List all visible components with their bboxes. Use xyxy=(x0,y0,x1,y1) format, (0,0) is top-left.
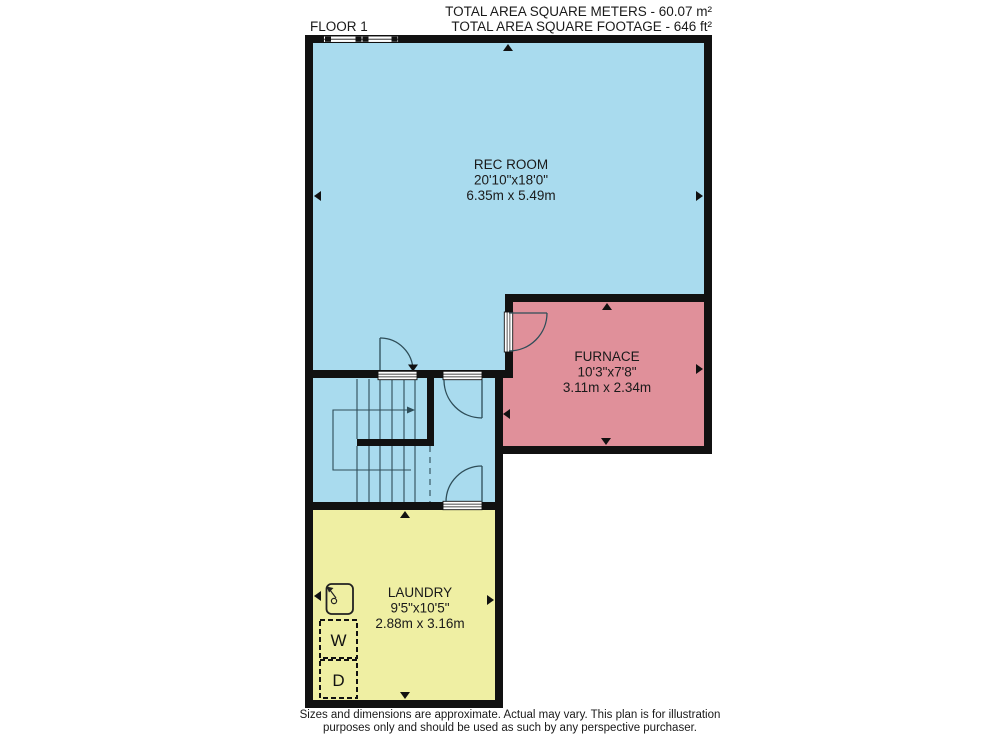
furnace-dims-metric: 3.11m x 2.34m xyxy=(563,380,651,395)
laundry-name: LAUNDRY xyxy=(388,585,452,600)
wall-stair-divider xyxy=(357,439,434,446)
floor-plan-drawing: W D REC ROOM 20'10"x18'0" 6.35m x 5.49m … xyxy=(0,0,1000,737)
opening-recroom-left xyxy=(378,371,417,379)
wall-furnace-top xyxy=(505,294,712,302)
opening-recroom-right xyxy=(443,371,482,379)
laundry-dims-imperial: 9'5"x10'5" xyxy=(390,601,449,616)
rec-room-dims-metric: 6.35m x 5.49m xyxy=(466,188,555,203)
furnace-name: FURNACE xyxy=(574,349,639,364)
disclaimer: Sizes and dimensions are approximate. Ac… xyxy=(10,709,1000,735)
window-symbol xyxy=(324,36,399,42)
wall-right xyxy=(704,35,712,454)
disclaimer-line2: purposes only and should be used as such… xyxy=(10,722,1000,735)
furnace-dims-imperial: 10'3"x7'8" xyxy=(577,365,636,380)
disclaimer-line1: Sizes and dimensions are approximate. Ac… xyxy=(10,709,1000,722)
opening-furnace xyxy=(504,312,512,352)
dryer-label: D xyxy=(332,671,344,690)
rec-room-name: REC ROOM xyxy=(474,157,548,172)
opening-laundry xyxy=(443,501,482,509)
wall-stair-stub xyxy=(427,378,434,446)
wall-furnace-bottom xyxy=(495,446,712,454)
floor-plan-page: FLOOR 1 TOTAL AREA SQUARE METERS - 60.07… xyxy=(0,0,1000,737)
wall-hall-right xyxy=(495,378,503,708)
washer-label: W xyxy=(330,631,346,650)
laundry-dims-metric: 2.88m x 3.16m xyxy=(375,616,464,631)
rec-room-dims-imperial: 20'10"x18'0" xyxy=(474,173,548,188)
wall-laundry-bottom xyxy=(305,700,503,708)
